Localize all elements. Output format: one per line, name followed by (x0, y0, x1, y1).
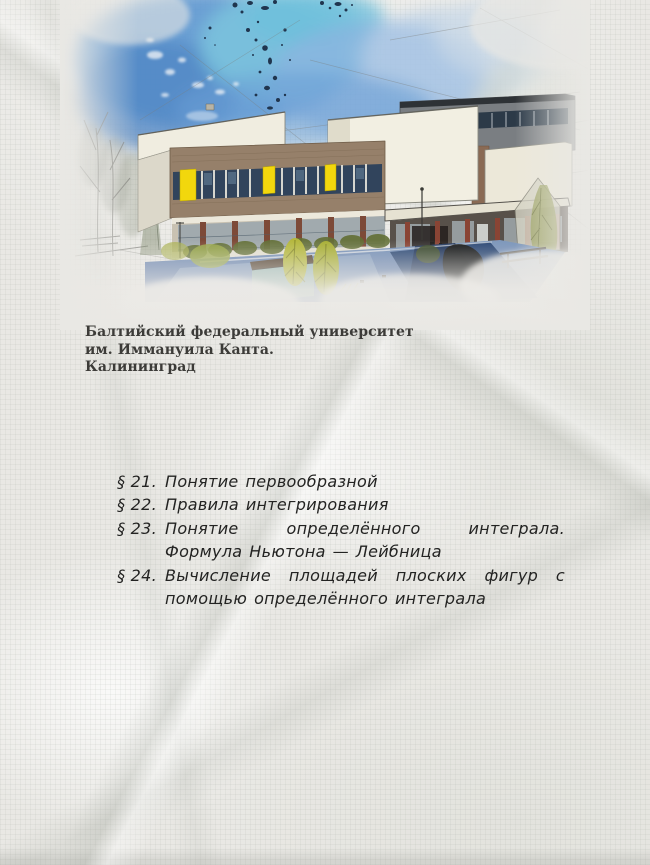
toc-item: § 21. Понятие первообразной (117, 470, 565, 493)
toc-title: Понятие определённого интеграла. Формула… (165, 517, 565, 564)
caption-line: Калининград (85, 359, 414, 377)
toc-number: § 21. (117, 470, 165, 493)
university-illustration (60, 0, 590, 330)
toc-title: Вычисление площадей плоских фигур с помо… (165, 564, 565, 611)
caption-line: им. Иммануила Канта. (85, 342, 414, 360)
toc-number: § 22. (117, 493, 165, 516)
toc-title: Правила интегрирования (165, 493, 565, 516)
photo-caption: Балтийский федеральный университет им. И… (85, 324, 414, 377)
toc-item: § 23. Понятие определённого интеграла. Ф… (117, 517, 565, 564)
caption-line: Балтийский федеральный университет (85, 324, 414, 342)
chapter-contents: § 21. Понятие первообразной § 22. Правил… (117, 470, 565, 610)
toc-item: § 22. Правила интегрирования (117, 493, 565, 516)
toc-number: § 24. (117, 564, 165, 611)
toc-title: Понятие первообразной (165, 470, 565, 493)
toc-item: § 24. Вычисление площадей плоских фигур … (117, 564, 565, 611)
toc-number: § 23. (117, 517, 165, 564)
